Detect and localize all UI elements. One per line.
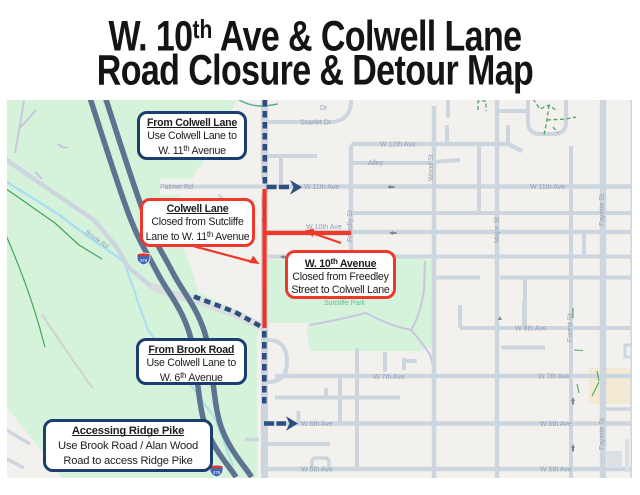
svg-text:476: 476 xyxy=(213,470,221,475)
svg-text:W 6th Ave: W 6th Ave xyxy=(301,421,333,428)
svg-text:Scarlet Dr: Scarlet Dr xyxy=(300,120,332,127)
svg-text:W 8th Ave: W 8th Ave xyxy=(515,326,547,333)
svg-text:Dr: Dr xyxy=(320,105,328,112)
svg-text:Fayette St: Fayette St xyxy=(599,418,606,450)
svg-text:Major St: Major St xyxy=(494,217,501,243)
svg-text:Alley: Alley xyxy=(368,160,384,167)
svg-text:Palmer Rd: Palmer Rd xyxy=(160,184,193,191)
svg-text:W 12th Ave: W 12th Ave xyxy=(380,142,416,149)
svg-text:W 5th Ave: W 5th Ave xyxy=(301,467,333,474)
svg-text:Fayette St: Fayette St xyxy=(599,194,606,226)
svg-text:Colwell Ln: Colwell Ln xyxy=(262,197,268,222)
svg-text:Forest St: Forest St xyxy=(567,314,574,342)
svg-text:W 5th Ave: W 5th Ave xyxy=(540,467,572,474)
svg-text:476: 476 xyxy=(140,258,148,263)
svg-text:Conshohocken Rd: Conshohocken Rd xyxy=(262,288,267,326)
svg-text:Wood St: Wood St xyxy=(428,154,435,181)
svg-text:W 11th Ave: W 11th Ave xyxy=(530,184,565,191)
svg-text:W 6th Ave: W 6th Ave xyxy=(540,421,572,428)
svg-text:W 11th Ave: W 11th Ave xyxy=(304,184,339,191)
svg-text:W 7th Ave: W 7th Ave xyxy=(538,374,570,381)
svg-text:Sutcliffe Park: Sutcliffe Park xyxy=(324,300,366,307)
svg-text:Freedly St: Freedly St xyxy=(347,210,354,242)
svg-text:W 7th Ave: W 7th Ave xyxy=(373,374,405,381)
